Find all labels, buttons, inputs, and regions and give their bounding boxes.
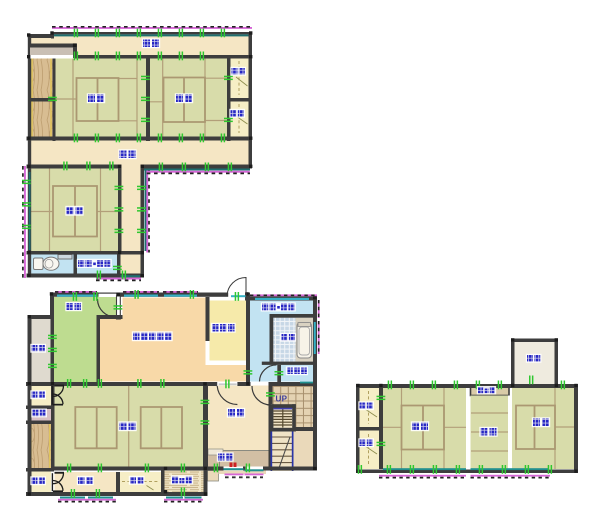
svg-text:UP: UP	[276, 395, 288, 404]
